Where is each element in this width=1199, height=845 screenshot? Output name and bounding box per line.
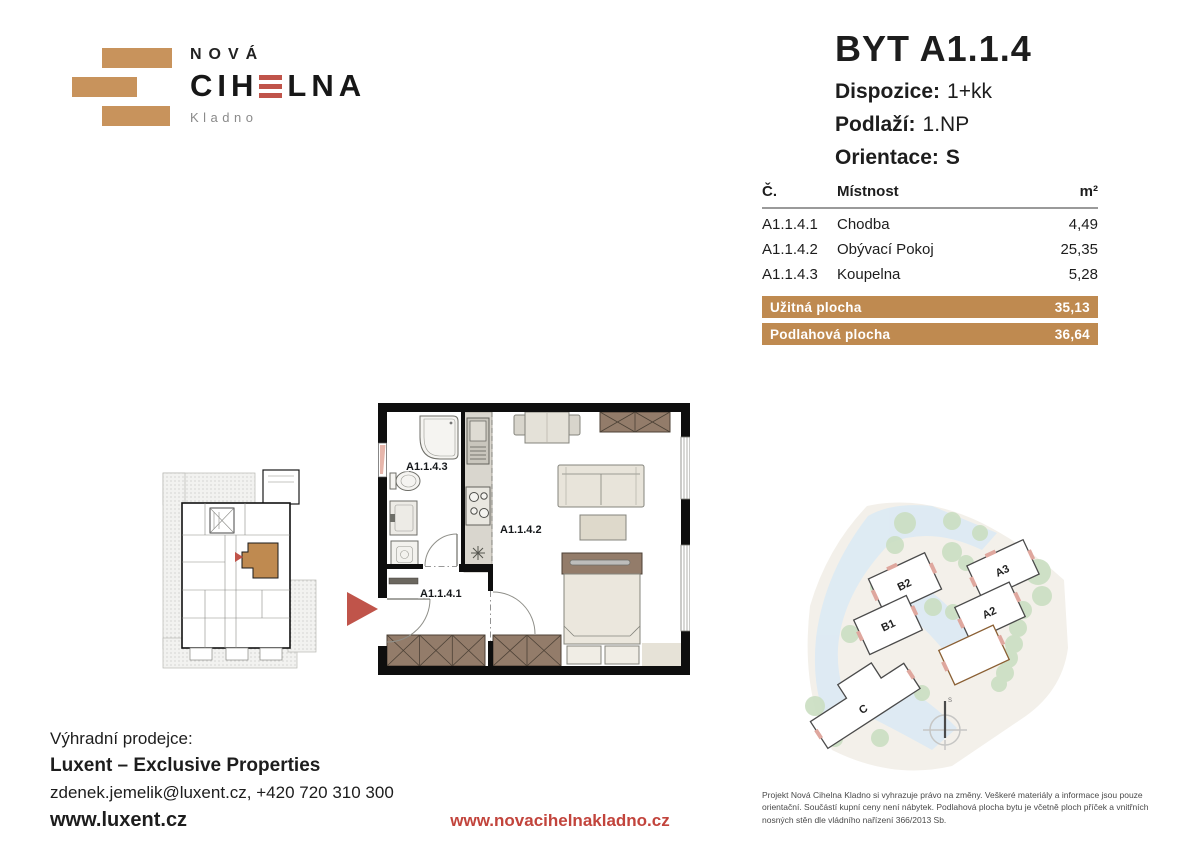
seller-contact-link[interactable]: zdenek.jemelik@luxent.cz, +420 720 310 3… bbox=[50, 783, 394, 803]
logo-text: NOVÁ CIH LNA Kladno bbox=[190, 46, 366, 125]
legal-disclaimer: Projekt Nová Cihelna Kladno si vyhrazuje… bbox=[762, 789, 1172, 826]
rug bbox=[642, 643, 681, 666]
wardrobe bbox=[600, 412, 670, 432]
room-label-living: A1.1.4.2 bbox=[500, 524, 542, 536]
shower bbox=[420, 416, 458, 459]
coffee-table bbox=[580, 515, 626, 540]
logo-name: CIH LNA bbox=[190, 68, 366, 104]
logo-brick-icon bbox=[102, 106, 170, 126]
table-row: A1.1.4.1 Chodba 4,49 bbox=[762, 209, 1098, 234]
project-website-link[interactable]: www.novacihelnakladno.cz bbox=[420, 811, 700, 831]
attr-podlazi: Podlaží:1.NP bbox=[835, 113, 992, 137]
window bbox=[681, 545, 690, 631]
chair bbox=[514, 415, 526, 435]
logo-e-bars-icon bbox=[259, 75, 282, 98]
unit-attributes: Dispozice:1+kk Podlaží:1.NP Orientace:S bbox=[835, 80, 992, 179]
table-row: A1.1.4.3 Koupelna 5,28 bbox=[762, 259, 1098, 291]
table-row: A1.1.4.2 Obývací Pokoj 25,35 bbox=[762, 234, 1098, 259]
logo-line1: NOVÁ bbox=[190, 46, 366, 64]
compass-north-label: S bbox=[948, 698, 952, 704]
kitchen-counter bbox=[464, 412, 492, 572]
room-table-header: Č. Místnost m² bbox=[762, 183, 1098, 209]
room-table: Č. Místnost m² A1.1.4.1 Chodba 4,49 A1.1… bbox=[762, 183, 1098, 345]
site-plan: B2 B1 A3 A2 A1 C bbox=[772, 488, 1088, 778]
window bbox=[681, 437, 690, 499]
page-title: BYT A1.1.4 bbox=[835, 28, 1032, 70]
room-label-bath: A1.1.4.3 bbox=[406, 461, 448, 473]
seller-name: Luxent – Exclusive Properties bbox=[50, 755, 320, 777]
washing-machine bbox=[391, 541, 418, 568]
logo-brick-icon bbox=[102, 48, 172, 68]
toilet bbox=[390, 473, 396, 489]
logo-name-post: LNA bbox=[287, 68, 366, 104]
sofa bbox=[558, 465, 644, 507]
seller-label: Výhradní prodejce: bbox=[50, 729, 193, 749]
cooktop bbox=[466, 487, 490, 525]
logo-subtitle: Kladno bbox=[190, 110, 366, 125]
brand-logo: NOVÁ CIH LNA Kladno bbox=[70, 40, 410, 140]
logo-brick-icon bbox=[72, 77, 137, 97]
total-usable-area: Užitná plocha 35,13 bbox=[762, 296, 1098, 318]
attr-dispozice: Dispozice:1+kk bbox=[835, 80, 992, 104]
total-floor-area: Podlahová plocha 36,64 bbox=[762, 323, 1098, 345]
room-label-hall: A1.1.4.1 bbox=[420, 588, 462, 600]
attr-orientace: Orientace:S bbox=[835, 146, 992, 170]
logo-name-pre: CIH bbox=[190, 68, 258, 104]
kitchen-sink-icon bbox=[471, 546, 485, 560]
apartment-floorplan: A1.1.4.3 A1.1.4.2 A1.1.4.1 bbox=[378, 403, 690, 675]
building-overview-plan bbox=[150, 440, 320, 690]
wardrobe bbox=[493, 635, 561, 666]
apartment-factsheet-page: NOVÁ CIH LNA Kladno BYT A1.1.4 Dispozice… bbox=[0, 0, 1199, 845]
seller-website-link[interactable]: www.luxent.cz bbox=[50, 809, 187, 832]
entrance-arrow-icon bbox=[347, 592, 378, 626]
chair bbox=[568, 415, 580, 435]
